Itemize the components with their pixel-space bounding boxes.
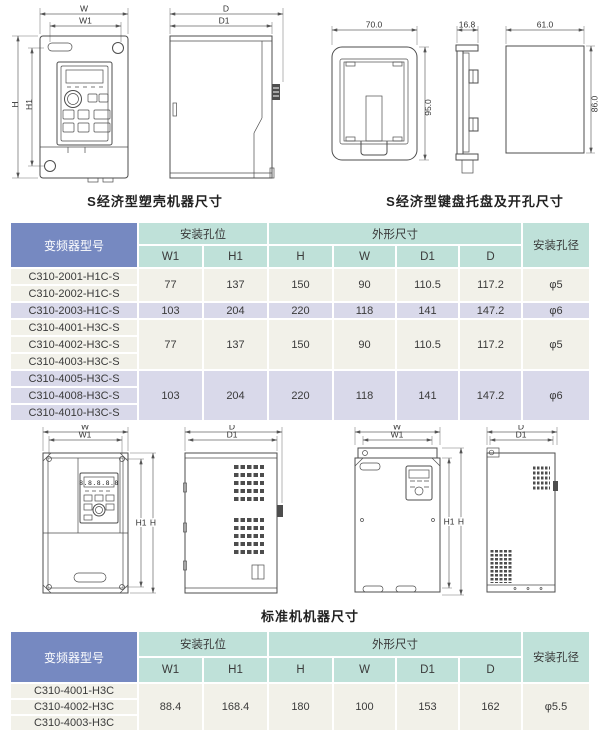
standard-small-front-view: 8.8.8.8.8 W W1 H1 H: [43, 425, 156, 593]
col-header-mounting-holes: 安装孔位: [139, 223, 267, 244]
table-row: C310-4001-H3C 88.4 168.4 180 100 153 162…: [11, 684, 589, 698]
col-header-outline-dims: 外形尺寸: [269, 223, 521, 244]
s-economy-drawings: W W1 H H1 D D1: [0, 0, 600, 190]
dim-label-tray-width: 70.0: [366, 20, 383, 30]
col-header-w1: W1: [139, 246, 202, 267]
standard-large-side-view: D D1: [487, 425, 558, 592]
dim-label-w1: W1: [79, 430, 92, 440]
keypad-display-digits: 8.8.8.8.8: [79, 479, 119, 487]
col-header-h1: H1: [204, 246, 267, 267]
dim-label-w1: W1: [391, 430, 404, 440]
col-header-w: W: [334, 246, 395, 267]
dim-label-cutout-height: 86.0: [590, 95, 600, 112]
model-cell: C310-4003-H3C: [11, 716, 137, 730]
datasheet-page: W W1 H H1 D D1: [0, 0, 600, 736]
caption-s-keypad: S经济型键盘托盘及开孔尺寸: [345, 191, 600, 210]
table-row: C310-2001-H1C-S 77 137 150 90 110.5 117.…: [11, 269, 589, 284]
model-cell: C310-4008-H3C-S: [11, 388, 137, 403]
model-cell: C310-4010-H3C-S: [11, 405, 137, 420]
dim-label-d1: D1: [227, 430, 238, 440]
col-header-hole-diameter: 安装孔径: [523, 632, 589, 682]
standard-dimension-table: 变频器型号 安装孔位 外形尺寸 安装孔径 W1 H1 H W D1 D C310…: [9, 630, 591, 732]
keypad-tray-front-view: 70.0 95.0: [332, 20, 433, 161]
dim-label-h: H: [150, 518, 156, 528]
standard-drawings: 8.8.8.8.8 W W1 H1 H: [0, 425, 600, 607]
dim-label-w1: W1: [79, 16, 92, 26]
model-cell: C310-4005-H3C-S: [11, 371, 137, 386]
s-economy-dimension-table: 变频器型号 安装孔位 外形尺寸 安装孔径 W1 H1 H W D1 D C310…: [9, 221, 591, 422]
model-cell: C310-4002-H3C: [11, 700, 137, 714]
col-header-outline-dims: 外形尺寸: [269, 632, 521, 656]
dim-label-tray-depth: 16.8: [459, 20, 476, 30]
model-cell: C310-4001-H3C-S: [11, 320, 137, 335]
col-header-h: H: [269, 246, 332, 267]
table-row: C310-4005-H3C-S 103 204 220 118 141 147.…: [11, 371, 589, 386]
dim-label-h: H: [458, 517, 464, 527]
keypad-cutout-view: 61.0 86.0: [506, 20, 600, 154]
s-plastic-front-view: W W1 H H1: [10, 4, 128, 183]
col-header-hole-diameter: 安装孔径: [523, 223, 589, 267]
caption-s-machine: S经济型塑壳机器尺寸: [10, 191, 300, 210]
caption-standard: 标准机机器尺寸: [20, 606, 600, 625]
keypad-tray-side-view: 16.8: [456, 20, 478, 174]
col-header-h1: H1: [204, 658, 267, 682]
dim-label-h1: H1: [444, 517, 455, 527]
dim-label-w: W: [80, 4, 88, 14]
dim-label-cutout-width: 61.0: [537, 20, 554, 30]
col-header-h: H: [269, 658, 332, 682]
s-plastic-side-view: D D1: [170, 4, 283, 179]
dim-label-h1: H1: [136, 518, 147, 528]
model-cell: C310-4003-H3C-S: [11, 354, 137, 369]
col-header-model: 变频器型号: [11, 632, 137, 682]
dim-label-d1: D1: [516, 430, 527, 440]
col-header-d: D: [460, 658, 521, 682]
model-cell: C310-2003-H1C-S: [11, 303, 137, 318]
col-header-d1: D1: [397, 658, 458, 682]
dim-label-tray-height: 95.0: [423, 99, 433, 116]
model-cell: C310-2002-H1C-S: [11, 286, 137, 301]
dim-label-d1: D1: [219, 16, 230, 26]
model-cell: C310-4002-H3C-S: [11, 337, 137, 352]
table-row: C310-2003-H1C-S 103 204 220 118 141 147.…: [11, 303, 589, 318]
standard-small-side-view: D D1: [184, 425, 284, 593]
col-header-w1: W1: [139, 658, 202, 682]
standard-large-front-view: W W1 H1 H: [355, 425, 464, 595]
dim-label-h1: H1: [24, 99, 34, 110]
dim-label-h: H: [10, 101, 20, 107]
model-cell: C310-2001-H1C-S: [11, 269, 137, 284]
col-header-d1: D1: [397, 246, 458, 267]
col-header-model: 变频器型号: [11, 223, 137, 267]
col-header-d: D: [460, 246, 521, 267]
dim-label-d: D: [223, 4, 229, 14]
col-header-w: W: [334, 658, 395, 682]
col-header-mounting-holes: 安装孔位: [139, 632, 267, 656]
model-cell: C310-4001-H3C: [11, 684, 137, 698]
table-row: C310-4001-H3C-S 77 137 150 90 110.5 117.…: [11, 320, 589, 335]
